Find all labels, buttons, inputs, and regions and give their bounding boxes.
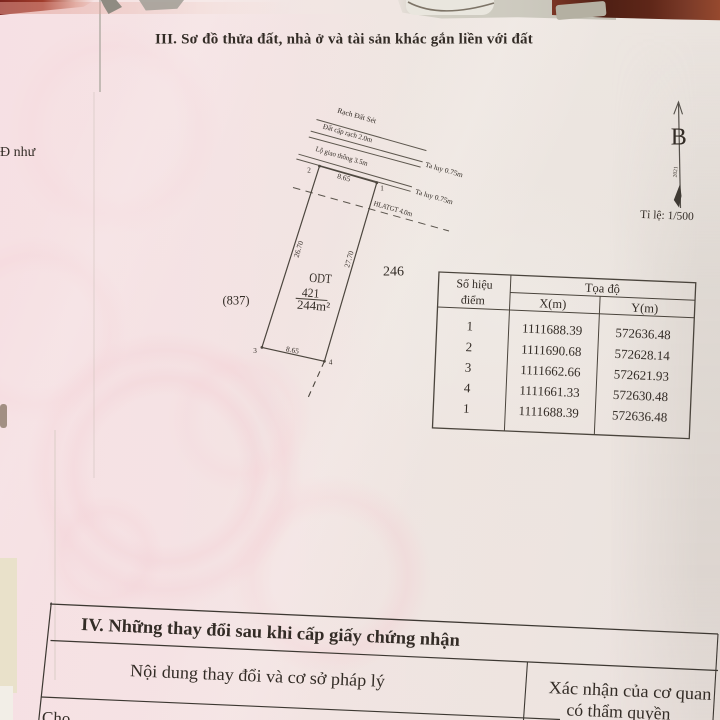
- svg-text:1: 1: [466, 318, 473, 333]
- svg-text:Y(m): Y(m): [631, 301, 659, 316]
- svg-text:2: 2: [465, 339, 472, 354]
- svg-text:Đ như: Đ như: [0, 145, 36, 160]
- svg-text:X(m): X(m): [539, 296, 567, 311]
- svg-text:4: 4: [329, 359, 333, 367]
- svg-text:Cho: Cho: [42, 708, 71, 720]
- svg-text:Lộ giao thông 3.5m: Lộ giao thông 3.5m: [315, 145, 369, 168]
- svg-text:ODT: ODT: [309, 270, 333, 287]
- svg-text:26.70: 26.70: [292, 240, 306, 259]
- svg-text:Tỉ lệ: 1/500: Tỉ lệ: 1/500: [640, 209, 694, 223]
- svg-text:572636.48: 572636.48: [612, 407, 668, 424]
- svg-text:572630.48: 572630.48: [613, 387, 669, 404]
- svg-text:2: 2: [307, 167, 311, 175]
- svg-text:Nội dung thay đổi và cơ sở phá: Nội dung thay đổi và cơ sở pháp lý: [130, 660, 386, 691]
- svg-text:1: 1: [463, 401, 470, 416]
- svg-text:(837): (837): [222, 294, 249, 308]
- svg-text:4: 4: [464, 380, 472, 395]
- svg-text:Tọa độ: Tọa độ: [585, 281, 621, 296]
- svg-text:Ta luy 0.75m: Ta luy 0.75m: [414, 188, 454, 207]
- svg-text:244m²: 244m²: [297, 298, 331, 314]
- svg-text:1111661.33: 1111661.33: [519, 382, 580, 400]
- svg-text:572628.14: 572628.14: [614, 346, 670, 363]
- svg-text:1111662.66: 1111662.66: [520, 362, 581, 380]
- svg-text:III. Sơ đồ thửa đất, nhà ở và: III. Sơ đồ thửa đất, nhà ở và tài sản kh…: [155, 32, 533, 48]
- svg-text:1111690.68: 1111690.68: [521, 342, 582, 360]
- svg-text:Ta luy 0.75m: Ta luy 0.75m: [424, 161, 464, 180]
- svg-text:1: 1: [380, 185, 384, 193]
- svg-text:B: B: [671, 125, 687, 151]
- svg-text:có thẩm quyền: có thẩm quyền: [566, 699, 671, 720]
- svg-text:2021: 2021: [673, 166, 680, 178]
- svg-text:27.70: 27.70: [342, 250, 355, 269]
- svg-text:Rạch Đất Sét: Rạch Đất Sét: [336, 107, 377, 126]
- svg-text:3: 3: [464, 360, 471, 375]
- svg-text:1111688.39: 1111688.39: [518, 403, 579, 421]
- svg-text:572621.93: 572621.93: [613, 366, 669, 383]
- svg-text:1111688.39: 1111688.39: [522, 321, 583, 339]
- svg-text:246: 246: [383, 265, 404, 280]
- svg-text:8.65: 8.65: [336, 171, 351, 183]
- svg-text:572636.48: 572636.48: [615, 325, 671, 342]
- svg-text:điểm: điểm: [461, 292, 486, 307]
- svg-text:Số hiệu: Số hiệu: [456, 276, 493, 292]
- svg-text:3: 3: [253, 347, 257, 355]
- svg-text:8.65: 8.65: [285, 344, 300, 356]
